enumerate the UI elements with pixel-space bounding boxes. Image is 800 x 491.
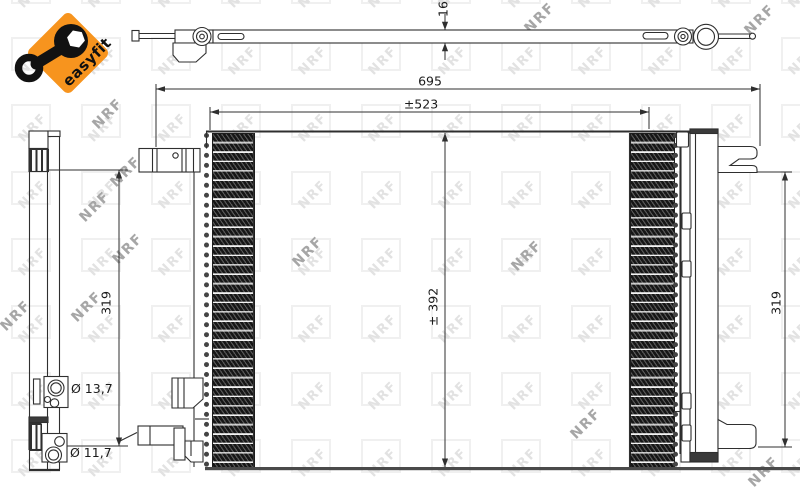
right-bottom-bracket: [718, 420, 756, 449]
lower-port-diameter-label: Ø 11,7: [70, 445, 112, 460]
top-left-connector: [139, 149, 200, 173]
dim-overall-width-label: 695: [418, 74, 442, 89]
upper-port-diameter-label: Ø 13,7: [71, 381, 113, 396]
dim-core-height-label: ± 392: [426, 288, 441, 326]
right-side-view-drawing: [677, 129, 758, 462]
dim-tube-width-label: ±523: [404, 97, 438, 112]
dim-thickness-label: 16: [436, 1, 451, 17]
top-view-drawing: [132, 24, 756, 62]
left-side-view-drawing: [29, 131, 68, 470]
dim-right-height-label: 319: [769, 291, 784, 315]
receiver-drier-body: [690, 129, 718, 462]
right-top-bracket: [718, 147, 757, 173]
bottom-left-brackets: [120, 378, 203, 462]
condenser-technical-drawing: NRFNRFNRFNRFNRFNRFNRFNRFNRFNRFNRFNRFNRFN…: [0, 0, 800, 491]
lower-port-fitting: [42, 434, 67, 464]
dim-left-height-label: 319: [99, 291, 114, 315]
top-view-grommet-right: [675, 28, 692, 45]
top-view-grommet-left: [193, 28, 211, 46]
upper-port-fitting: [34, 377, 69, 408]
core-bottom-edge: [205, 467, 800, 470]
